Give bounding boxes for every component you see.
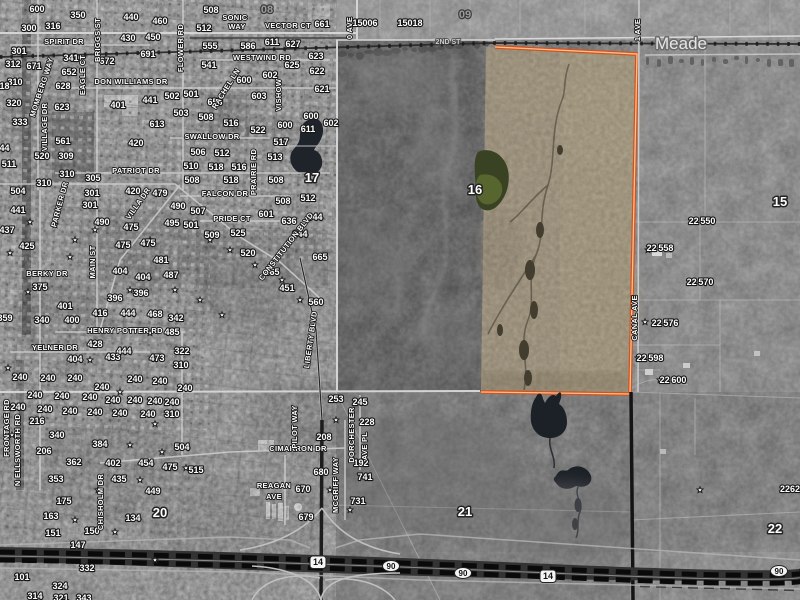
svg-text:300: 300 — [21, 23, 36, 33]
svg-text:512: 512 — [214, 148, 229, 158]
svg-text:613: 613 — [149, 119, 164, 129]
svg-text:YELNER DR: YELNER DR — [32, 343, 78, 352]
svg-text:151: 151 — [45, 528, 60, 538]
svg-text:555: 555 — [202, 41, 217, 51]
svg-text:310: 310 — [173, 360, 188, 370]
svg-text:401: 401 — [110, 100, 125, 110]
svg-text:600: 600 — [29, 4, 44, 14]
svg-text:508: 508 — [198, 112, 213, 122]
svg-text:22 558: 22 558 — [647, 243, 674, 253]
svg-text:301: 301 — [82, 200, 97, 210]
svg-text:441: 441 — [10, 205, 25, 215]
svg-text:561: 561 — [55, 136, 70, 146]
svg-text:322: 322 — [174, 346, 189, 356]
svg-text:134: 134 — [125, 513, 140, 523]
svg-text:305: 305 — [85, 173, 100, 183]
svg-text:HENRY POTTER RD: HENRY POTTER RD — [87, 326, 163, 335]
svg-text:101: 101 — [14, 572, 29, 582]
svg-text:341: 341 — [63, 53, 78, 63]
svg-text:AVE: AVE — [266, 492, 282, 501]
svg-text:240: 240 — [177, 383, 192, 393]
svg-text:506: 506 — [190, 147, 205, 157]
svg-text:VISHOW: VISHOW — [274, 78, 283, 111]
svg-text:513: 513 — [267, 152, 282, 162]
svg-text:REAGAN: REAGAN — [257, 481, 291, 490]
svg-text:460: 460 — [152, 16, 167, 26]
svg-text:14: 14 — [313, 557, 323, 567]
svg-text:340: 340 — [34, 315, 49, 325]
svg-text:MCGRIFF WAY: MCGRIFF WAY — [331, 457, 340, 513]
svg-text:627: 627 — [285, 39, 300, 49]
svg-text:320: 320 — [6, 98, 21, 108]
svg-text:240: 240 — [127, 374, 142, 384]
svg-text:600: 600 — [303, 111, 318, 121]
svg-text:15: 15 — [773, 194, 787, 209]
svg-text:22 570: 22 570 — [687, 277, 714, 287]
svg-text:DORCHESTER: DORCHESTER — [347, 407, 356, 463]
svg-text:665: 665 — [312, 252, 327, 262]
svg-text:2ND ST: 2ND ST — [436, 39, 462, 46]
svg-text:EAGLE CT: EAGLE CT — [78, 55, 87, 95]
svg-text:508: 508 — [203, 5, 218, 15]
svg-text:BRIGGS ST: BRIGGS ST — [93, 18, 102, 62]
svg-text:515: 515 — [188, 465, 203, 475]
svg-text:240: 240 — [54, 391, 69, 401]
svg-text:518: 518 — [223, 175, 238, 185]
svg-text:444: 444 — [120, 308, 135, 318]
svg-text:444: 444 — [116, 346, 131, 356]
svg-text:602: 602 — [323, 118, 338, 128]
svg-text:420: 420 — [128, 138, 143, 148]
svg-text:CANAL AVE: CANAL AVE — [630, 295, 639, 340]
svg-text:0 AVE: 0 AVE — [345, 17, 354, 39]
svg-text:240: 240 — [67, 373, 82, 383]
svg-text:435: 435 — [111, 474, 126, 484]
svg-text:509: 509 — [204, 230, 219, 240]
svg-text:428: 428 — [87, 339, 102, 349]
svg-text:586: 586 — [240, 41, 255, 51]
svg-text:310: 310 — [36, 178, 51, 188]
svg-text:22 550: 22 550 — [689, 216, 716, 226]
svg-text:481: 481 — [153, 255, 168, 265]
svg-text:228: 228 — [359, 417, 374, 427]
svg-text:425: 425 — [19, 241, 34, 251]
svg-text:342: 342 — [168, 313, 183, 323]
svg-text:240: 240 — [94, 382, 109, 392]
svg-text:601: 601 — [258, 209, 273, 219]
svg-text:485: 485 — [164, 327, 179, 337]
svg-text:602: 602 — [262, 70, 277, 80]
svg-text:147: 147 — [70, 540, 85, 550]
svg-text:375: 375 — [32, 282, 47, 292]
svg-text:504: 504 — [10, 186, 25, 196]
svg-text:90: 90 — [775, 567, 784, 576]
svg-text:416: 416 — [92, 308, 107, 318]
svg-text:652: 652 — [61, 67, 76, 77]
svg-text:628: 628 — [55, 81, 70, 91]
svg-text:600: 600 — [277, 120, 292, 130]
svg-text:396: 396 — [133, 288, 148, 298]
svg-text:206: 206 — [36, 446, 51, 456]
svg-text:22: 22 — [768, 521, 782, 536]
svg-text:611: 611 — [265, 37, 280, 47]
svg-text:487: 487 — [163, 270, 178, 280]
svg-text:344: 344 — [0, 143, 10, 153]
svg-text:691: 691 — [140, 49, 155, 59]
svg-text:301: 301 — [11, 46, 26, 56]
svg-text:522: 522 — [250, 125, 265, 135]
svg-text:495: 495 — [164, 218, 179, 228]
svg-text:475: 475 — [140, 238, 155, 248]
svg-text:490: 490 — [94, 217, 109, 227]
svg-text:FLOWER RD: FLOWER RD — [176, 24, 185, 72]
svg-text:N ELLSWORTH RD: N ELLSWORTH RD — [13, 414, 22, 486]
svg-text:175: 175 — [56, 496, 71, 506]
svg-text:359: 359 — [0, 313, 13, 323]
svg-text:16: 16 — [468, 182, 482, 197]
svg-text:541: 541 — [201, 60, 216, 70]
svg-text:316: 316 — [45, 21, 60, 31]
svg-text:22 600: 22 600 — [660, 375, 687, 385]
svg-text:490: 490 — [170, 201, 185, 211]
svg-text:14: 14 — [543, 571, 553, 581]
svg-text:350: 350 — [70, 10, 85, 20]
svg-text:MAIN ST: MAIN ST — [88, 245, 97, 278]
svg-text:15018: 15018 — [397, 18, 422, 28]
svg-text:511: 511 — [2, 159, 17, 169]
svg-text:525: 525 — [230, 228, 245, 238]
svg-text:312: 312 — [5, 59, 20, 69]
svg-text:402: 402 — [105, 458, 120, 468]
svg-text:VECTOR CT: VECTOR CT — [265, 21, 311, 30]
svg-text:240: 240 — [12, 372, 27, 382]
svg-text:518: 518 — [208, 162, 223, 172]
svg-text:240: 240 — [112, 408, 127, 418]
svg-text:90: 90 — [459, 569, 468, 578]
svg-text:731: 731 — [350, 496, 365, 506]
svg-text:454: 454 — [138, 458, 153, 468]
svg-text:508: 508 — [268, 175, 283, 185]
svg-text:240: 240 — [87, 407, 102, 417]
svg-text:240: 240 — [152, 376, 167, 386]
svg-text:353: 353 — [48, 474, 63, 484]
svg-text:240: 240 — [164, 397, 179, 407]
svg-text:VILLAGE DR: VILLAGE DR — [40, 103, 49, 152]
svg-text:473: 473 — [149, 353, 164, 363]
svg-text:1 AVE: 1 AVE — [633, 19, 642, 41]
svg-text:333: 333 — [12, 117, 27, 127]
svg-text:517: 517 — [273, 137, 288, 147]
svg-text:404: 404 — [112, 266, 127, 276]
svg-text:507: 507 — [190, 206, 205, 216]
svg-text:516: 516 — [231, 162, 246, 172]
svg-text:520: 520 — [240, 248, 255, 258]
svg-text:404: 404 — [135, 272, 150, 282]
svg-text:623: 623 — [308, 51, 323, 61]
svg-text:468: 468 — [147, 309, 162, 319]
svg-text:741: 741 — [357, 472, 372, 482]
svg-text:430: 430 — [120, 33, 135, 43]
svg-text:340: 340 — [49, 430, 64, 440]
svg-text:441: 441 — [142, 95, 157, 105]
svg-text:240: 240 — [82, 392, 97, 402]
svg-text:636: 636 — [281, 216, 296, 226]
svg-text:479: 479 — [152, 188, 167, 198]
svg-text:SWALLOW DR: SWALLOW DR — [184, 132, 239, 141]
svg-text:08: 08 — [261, 4, 273, 16]
svg-text:501: 501 — [183, 220, 198, 230]
svg-text:611: 611 — [301, 124, 316, 134]
svg-text:240: 240 — [10, 402, 25, 412]
svg-text:240: 240 — [127, 395, 142, 405]
svg-text:362: 362 — [66, 457, 81, 467]
svg-text:401: 401 — [57, 301, 72, 311]
svg-text:318: 318 — [0, 81, 10, 91]
svg-text:216: 216 — [29, 416, 44, 426]
svg-text:321: 321 — [53, 593, 68, 600]
svg-text:AVE PL: AVE PL — [360, 432, 369, 460]
svg-text:310: 310 — [7, 77, 22, 87]
svg-text:508: 508 — [275, 196, 290, 206]
svg-text:670: 670 — [295, 484, 310, 494]
svg-text:FALCON DR: FALCON DR — [202, 189, 249, 198]
svg-text:20: 20 — [153, 505, 167, 520]
svg-text:671: 671 — [26, 61, 41, 71]
svg-text:475: 475 — [162, 462, 177, 472]
svg-text:661: 661 — [314, 19, 329, 29]
svg-text:PILOT WAY: PILOT WAY — [290, 405, 299, 448]
svg-text:17: 17 — [305, 170, 319, 185]
svg-text:CHISHOLM DR: CHISHOLM DR — [96, 474, 105, 530]
svg-text:324: 324 — [52, 581, 67, 591]
svg-text:512: 512 — [300, 193, 315, 203]
svg-text:240: 240 — [37, 404, 52, 414]
svg-text:309: 309 — [58, 151, 73, 161]
svg-text:240: 240 — [40, 373, 55, 383]
svg-text:475: 475 — [115, 240, 130, 250]
svg-text:253: 253 — [328, 394, 343, 404]
svg-text:15006: 15006 — [352, 18, 377, 28]
svg-text:396: 396 — [107, 293, 122, 303]
svg-text:623: 623 — [54, 102, 69, 112]
svg-text:BERKY DR: BERKY DR — [26, 269, 68, 278]
svg-text:450: 450 — [145, 32, 160, 42]
svg-text:520: 520 — [34, 151, 49, 161]
svg-text:FRONTAGE RD: FRONTAGE RD — [2, 399, 11, 457]
svg-text:603: 603 — [251, 91, 266, 101]
svg-text:475: 475 — [123, 222, 138, 232]
svg-text:384: 384 — [92, 439, 107, 449]
svg-text:440: 440 — [123, 12, 138, 22]
svg-text:451: 451 — [279, 283, 294, 293]
svg-text:240: 240 — [105, 395, 120, 405]
svg-text:510: 510 — [183, 161, 198, 171]
svg-text:314: 314 — [27, 591, 42, 600]
svg-text:310: 310 — [164, 409, 179, 419]
svg-text:310: 310 — [59, 169, 74, 179]
svg-text:301: 301 — [84, 188, 99, 198]
svg-text:240: 240 — [62, 406, 77, 416]
svg-text:621: 621 — [314, 84, 329, 94]
svg-text:SPIRIT DR: SPIRIT DR — [44, 37, 84, 46]
svg-text:332: 332 — [79, 563, 94, 573]
svg-text:560: 560 — [308, 297, 323, 307]
svg-text:449: 449 — [145, 486, 160, 496]
svg-text:PRAIRIE RD: PRAIRIE RD — [249, 149, 258, 196]
svg-text:504: 504 — [174, 442, 189, 452]
svg-text:SONIC: SONIC — [222, 13, 248, 22]
svg-text:208: 208 — [316, 432, 331, 442]
svg-text:502: 502 — [164, 91, 179, 101]
svg-text:240: 240 — [140, 409, 155, 419]
svg-text:09: 09 — [459, 9, 471, 21]
svg-text:679: 679 — [298, 512, 313, 522]
svg-text:Meade: Meade — [655, 34, 707, 53]
svg-text:512: 512 — [196, 23, 211, 33]
svg-text:163: 163 — [43, 511, 58, 521]
svg-text:WAY: WAY — [228, 22, 245, 31]
svg-text:501: 501 — [183, 89, 198, 99]
svg-text:240: 240 — [147, 396, 162, 406]
svg-text:622: 622 — [309, 66, 324, 76]
svg-text:22 598: 22 598 — [637, 353, 664, 363]
svg-text:22 576: 22 576 — [652, 318, 679, 328]
svg-text:DON WILLIAMS DR: DON WILLIAMS DR — [94, 77, 168, 86]
svg-text:WESTWIND RD: WESTWIND RD — [233, 53, 291, 62]
svg-text:404: 404 — [67, 354, 82, 364]
svg-text:400: 400 — [64, 315, 79, 325]
svg-text:PRIDE CT: PRIDE CT — [213, 214, 251, 223]
svg-text:PATRIOT DR: PATRIOT DR — [112, 166, 160, 175]
svg-text:503: 503 — [173, 108, 188, 118]
svg-text:680: 680 — [313, 467, 328, 477]
svg-text:508: 508 — [184, 175, 199, 185]
svg-text:2262: 2262 — [780, 484, 800, 494]
svg-text:343: 343 — [76, 593, 91, 600]
svg-text:90: 90 — [387, 562, 396, 571]
svg-text:516: 516 — [223, 118, 238, 128]
svg-text:21: 21 — [458, 504, 472, 519]
svg-text:240: 240 — [27, 390, 42, 400]
svg-text:437: 437 — [0, 225, 15, 235]
svg-text:245: 245 — [352, 397, 367, 407]
